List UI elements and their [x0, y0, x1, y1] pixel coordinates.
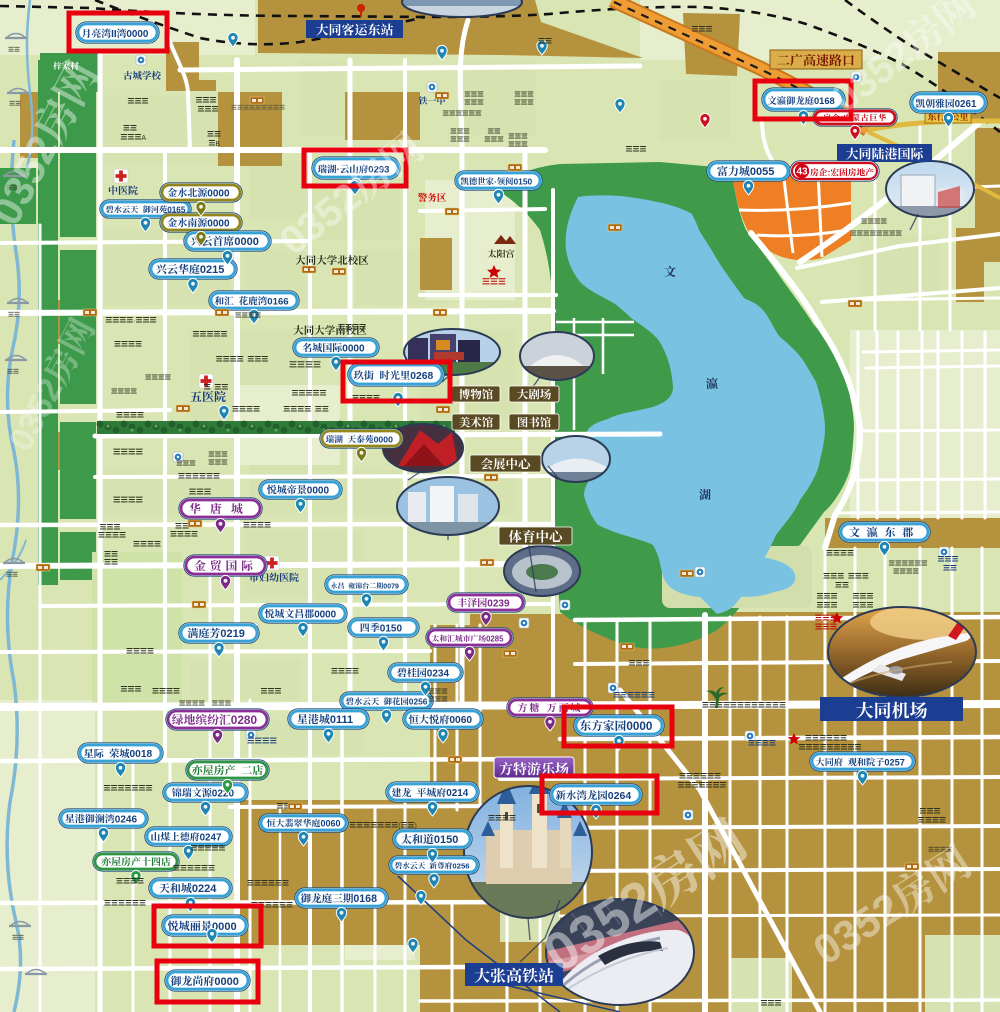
svg-text:0246: 0246: [115, 814, 138, 825]
svg-text:0000: 0000: [214, 976, 238, 988]
svg-text:0214: 0214: [446, 788, 468, 799]
svg-text:0000: 0000: [207, 218, 230, 229]
svg-text:·: ·: [133, 318, 135, 325]
svg-text:0055: 0055: [750, 166, 774, 178]
svg-text:0000: 0000: [307, 485, 330, 496]
svg-text::: :: [828, 168, 831, 178]
svg-text:0261: 0261: [955, 99, 977, 110]
svg-text:0224: 0224: [192, 883, 217, 895]
svg-text:0257: 0257: [884, 757, 904, 767]
svg-text:0220: 0220: [212, 788, 235, 799]
svg-text:0215: 0215: [200, 264, 224, 276]
svg-text:0247: 0247: [200, 832, 222, 843]
svg-text:0000: 0000: [626, 720, 653, 733]
svg-text:0166: 0166: [267, 296, 288, 307]
svg-text:0168: 0168: [353, 893, 377, 905]
svg-text:0060: 0060: [449, 715, 472, 726]
svg-text:0256: 0256: [452, 861, 469, 870]
svg-text:43: 43: [796, 167, 808, 178]
svg-text:0000: 0000: [374, 434, 393, 444]
svg-text:0239: 0239: [487, 598, 510, 609]
svg-text:0219: 0219: [220, 628, 244, 640]
svg-text:·: ·: [494, 176, 497, 186]
svg-text:0000: 0000: [314, 609, 336, 620]
svg-text:B: B: [215, 141, 220, 148]
svg-text:0150: 0150: [434, 834, 458, 846]
svg-text:0150: 0150: [514, 176, 533, 186]
svg-text:0000: 0000: [342, 343, 365, 354]
svg-text:0285: 0285: [486, 634, 504, 643]
svg-text:0000: 0000: [207, 188, 230, 199]
svg-text:0268: 0268: [410, 371, 433, 382]
svg-text:0000: 0000: [126, 29, 148, 40]
svg-text:0111: 0111: [330, 714, 353, 726]
svg-text:0079: 0079: [383, 583, 399, 590]
svg-text:0256: 0256: [409, 696, 428, 706]
svg-text:II: II: [111, 29, 117, 40]
svg-text:0060: 0060: [321, 818, 341, 828]
svg-text:0234: 0234: [427, 668, 450, 679]
svg-text:0280: 0280: [231, 713, 258, 727]
svg-text:·: ·: [337, 165, 340, 176]
svg-text:): ): [415, 823, 417, 830]
svg-text:0264: 0264: [608, 790, 632, 802]
svg-text:0000: 0000: [234, 236, 258, 248]
svg-text:A: A: [141, 135, 146, 142]
svg-text:0018: 0018: [130, 749, 153, 760]
svg-text:0150: 0150: [380, 623, 403, 634]
